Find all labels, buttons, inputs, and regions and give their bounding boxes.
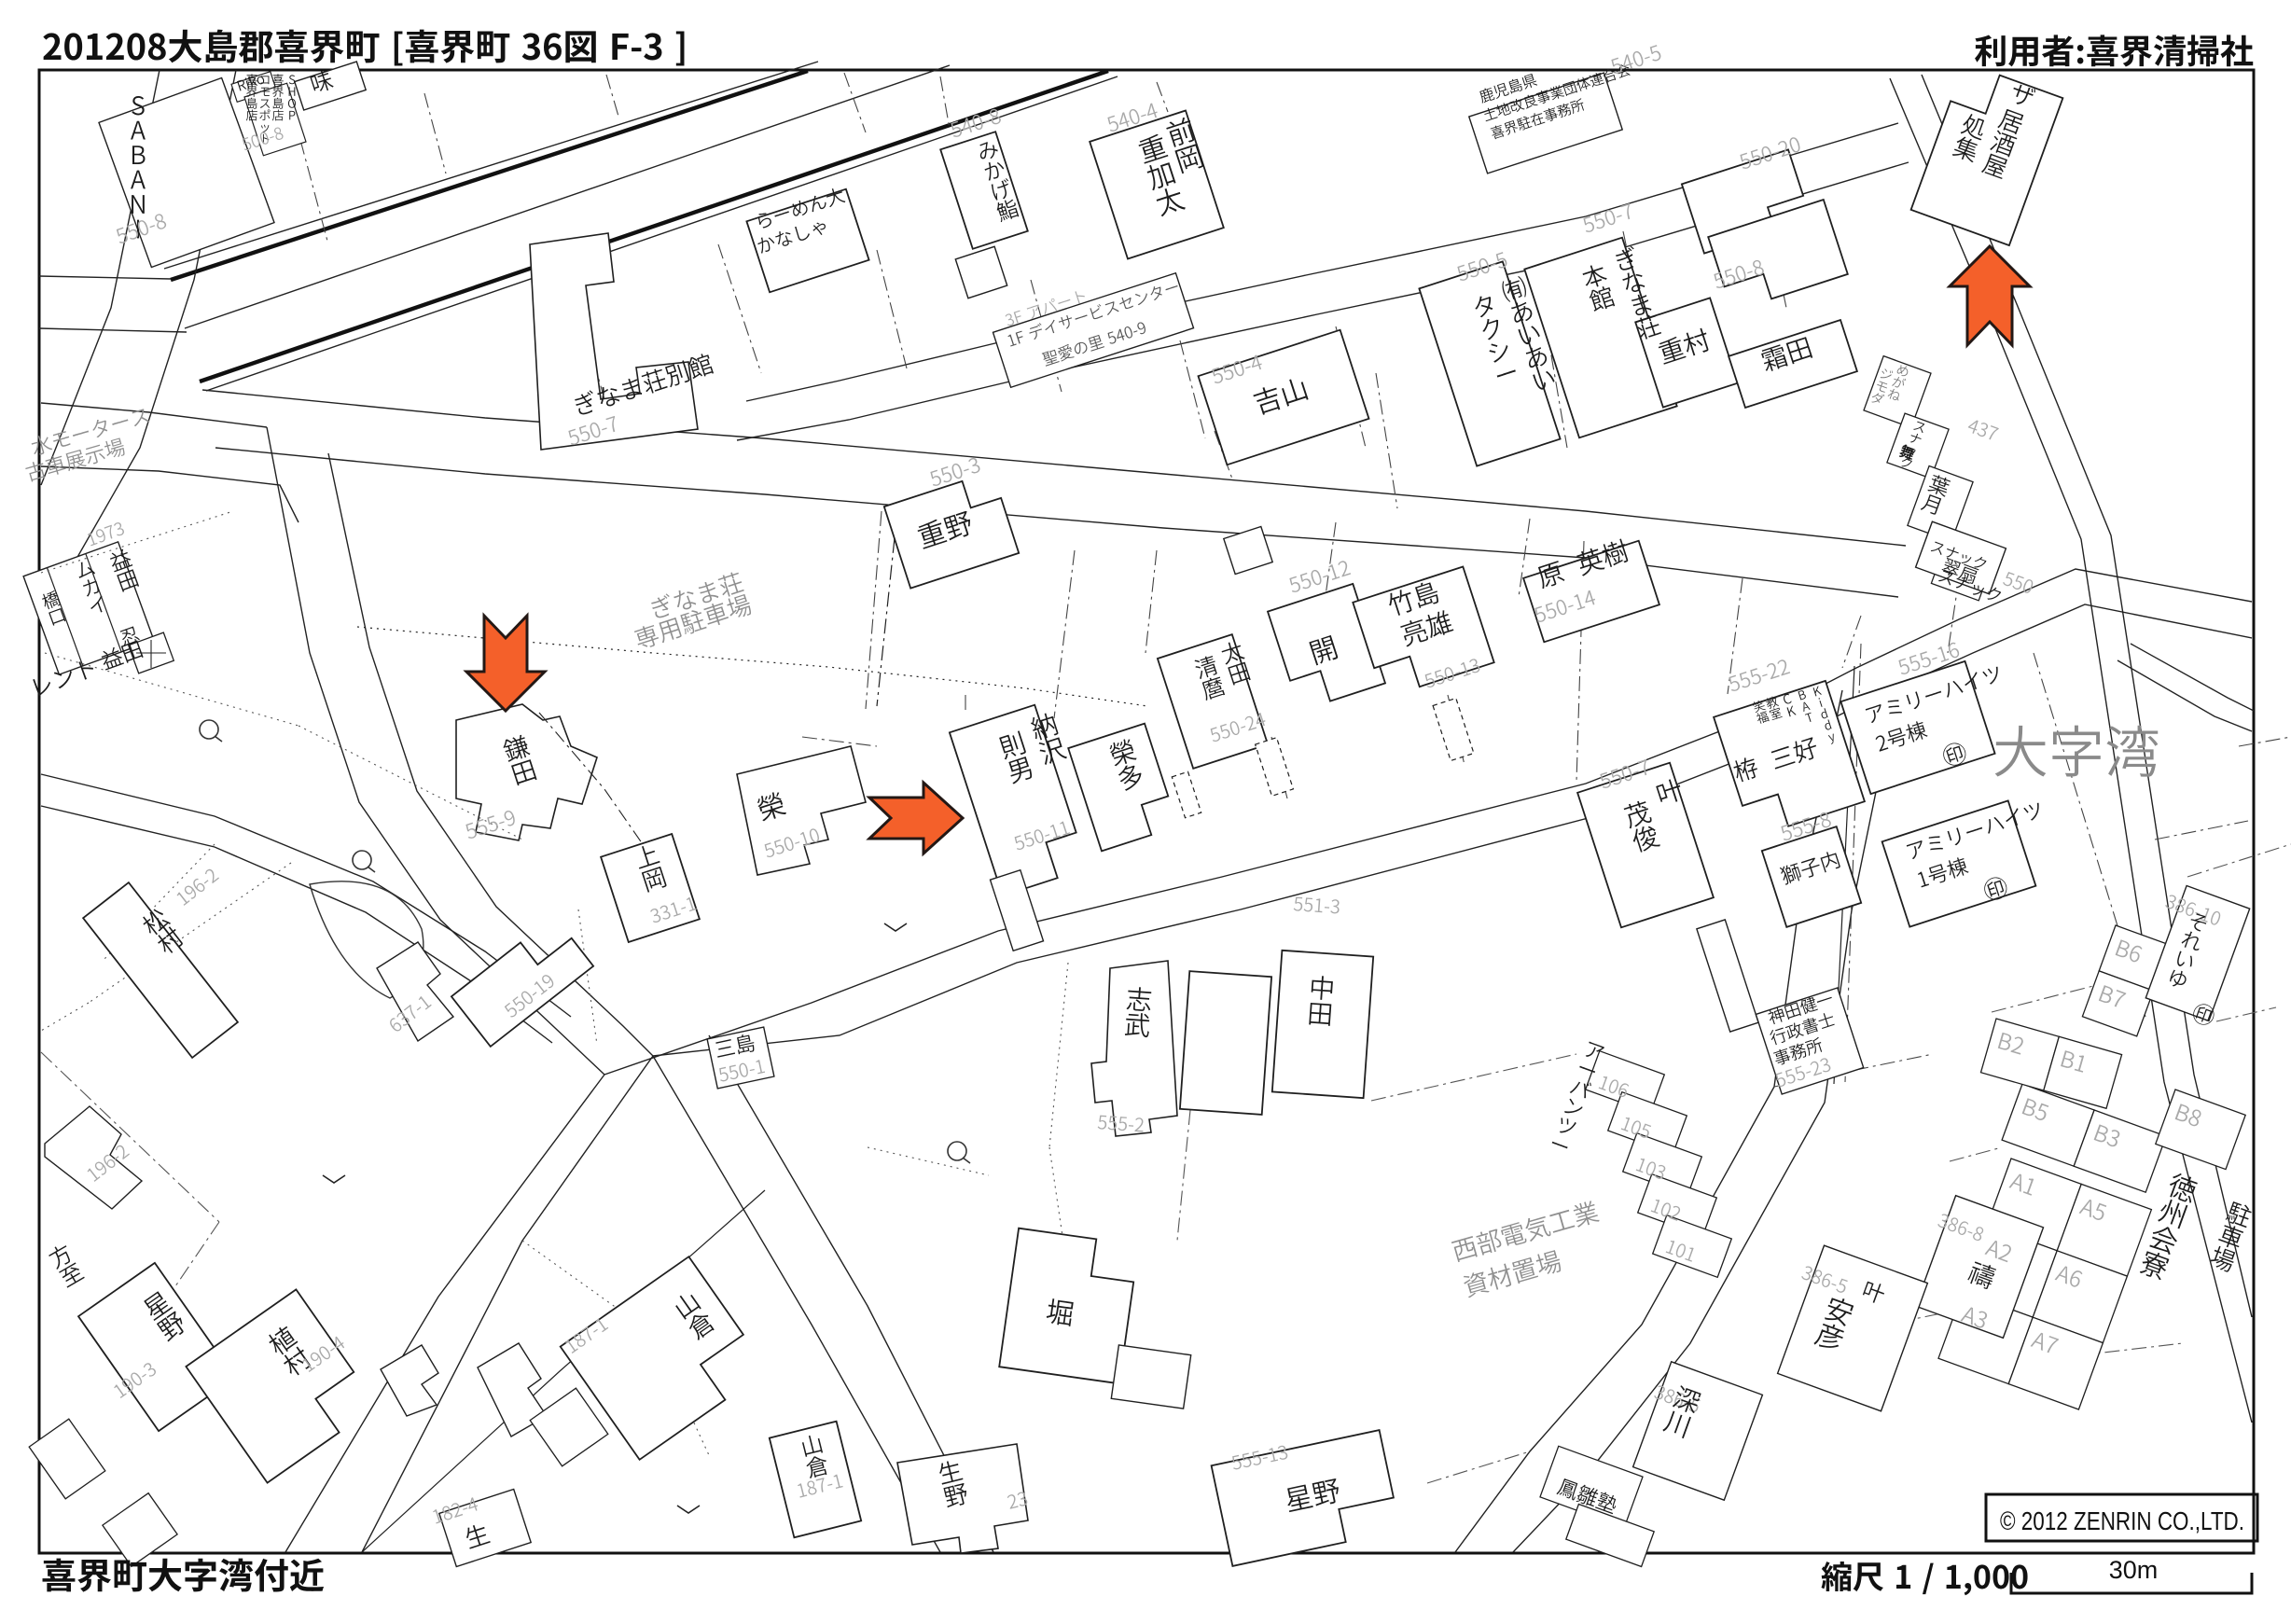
svg-text:© 2012 ZENRIN CO.,LTD.: © 2012 ZENRIN CO.,LTD. <box>2000 1506 2244 1535</box>
svg-text:30m: 30m <box>2109 1556 2159 1584</box>
